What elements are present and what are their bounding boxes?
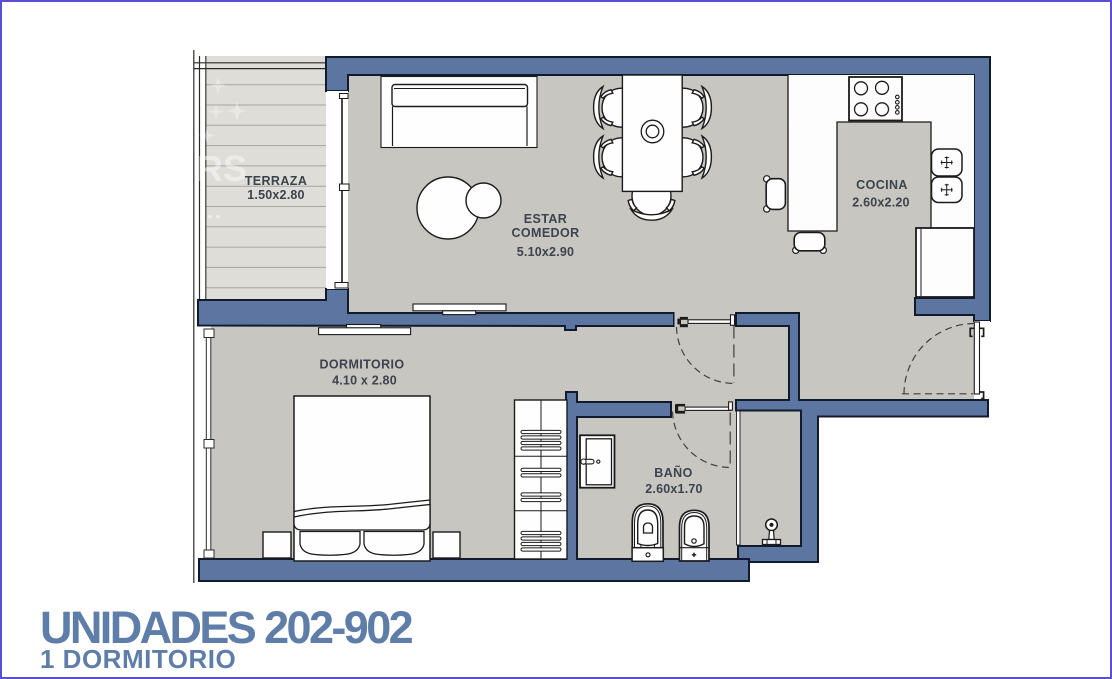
svg-text:1 DORMITORIO: 1 DORMITORIO	[40, 644, 236, 674]
svg-text:1.50x2.80: 1.50x2.80	[247, 188, 304, 202]
svg-text:ESTAR: ESTAR	[524, 212, 567, 226]
svg-text:TERRAZA: TERRAZA	[245, 174, 308, 188]
svg-text:DORMITORIO: DORMITORIO	[319, 358, 404, 372]
svg-text:2.60x2.20: 2.60x2.20	[852, 196, 909, 210]
svg-text:2.60x1.70: 2.60x1.70	[645, 482, 702, 496]
svg-text:RS: RS	[197, 148, 247, 189]
svg-text:COCINA: COCINA	[856, 178, 908, 192]
svg-text:COMEDOR: COMEDOR	[511, 226, 579, 240]
svg-text:4.10 x 2.80: 4.10 x 2.80	[332, 374, 397, 388]
svg-text:BAÑO: BAÑO	[654, 465, 692, 480]
svg-text:5.10x2.90: 5.10x2.90	[517, 245, 574, 259]
